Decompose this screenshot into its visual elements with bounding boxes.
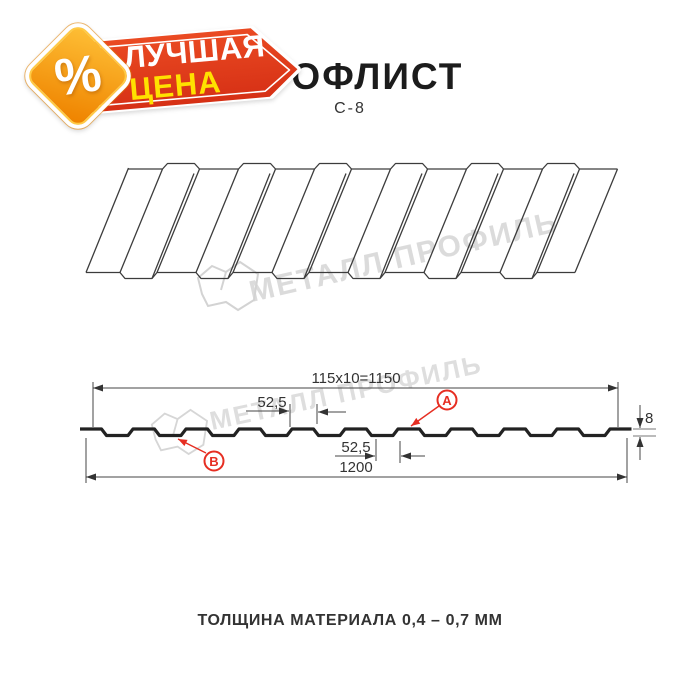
- dim-working-width-label: 115x10=1150: [311, 370, 400, 387]
- sheet-3d-drawing: МЕТАЛЛ ПРОФИЛЬ: [55, 140, 635, 320]
- label-b-marker: B: [178, 439, 224, 471]
- height-reference-lines: [633, 429, 656, 436]
- product-card: ПРОФЛИСТ C-8 ЛУЧШАЯ ЦЕНА % МЕТА: [0, 0, 700, 700]
- metal-profil-logo-icon: [152, 410, 207, 454]
- sheet-right-edge: [575, 169, 618, 273]
- dim-pitch-bottom-label: 52,5: [341, 439, 370, 456]
- rib-edge-left: [120, 169, 163, 273]
- dim-total-width-label: 1200: [339, 459, 372, 476]
- rib-edge-right: [233, 169, 276, 273]
- watermark-2: МЕТАЛЛ ПРОФИЛЬ: [152, 349, 485, 454]
- rib-edge-right: [157, 169, 200, 273]
- profile-cross-section: [80, 429, 632, 436]
- rib-edge-inner: [152, 174, 194, 279]
- rib-edge-left: [196, 169, 239, 273]
- rib-edge-inner: [228, 174, 270, 279]
- label-a-marker: A: [411, 391, 457, 427]
- rib-edge-left: [272, 169, 315, 273]
- label-b-text: B: [209, 454, 218, 469]
- percent-icon: %: [37, 35, 118, 116]
- sheet-left-edge: [86, 168, 129, 273]
- sheet-back-edge: [129, 164, 618, 170]
- best-price-badge: ЛУЧШАЯ ЦЕНА %: [12, 10, 312, 138]
- label-a-text: A: [442, 393, 452, 408]
- thickness-note: ТОЛЩИНА МАТЕРИАЛА 0,4 – 0,7 ММ: [0, 612, 700, 630]
- cross-section-drawing: МЕТАЛЛ ПРОФИЛЬ 115x10=1150 52,5: [55, 348, 680, 515]
- dim-height-label: 8: [645, 410, 653, 427]
- dim-pitch-top-label: 52,5: [257, 394, 286, 411]
- watermark-1: МЕТАЛЛ ПРОФИЛЬ: [198, 206, 562, 310]
